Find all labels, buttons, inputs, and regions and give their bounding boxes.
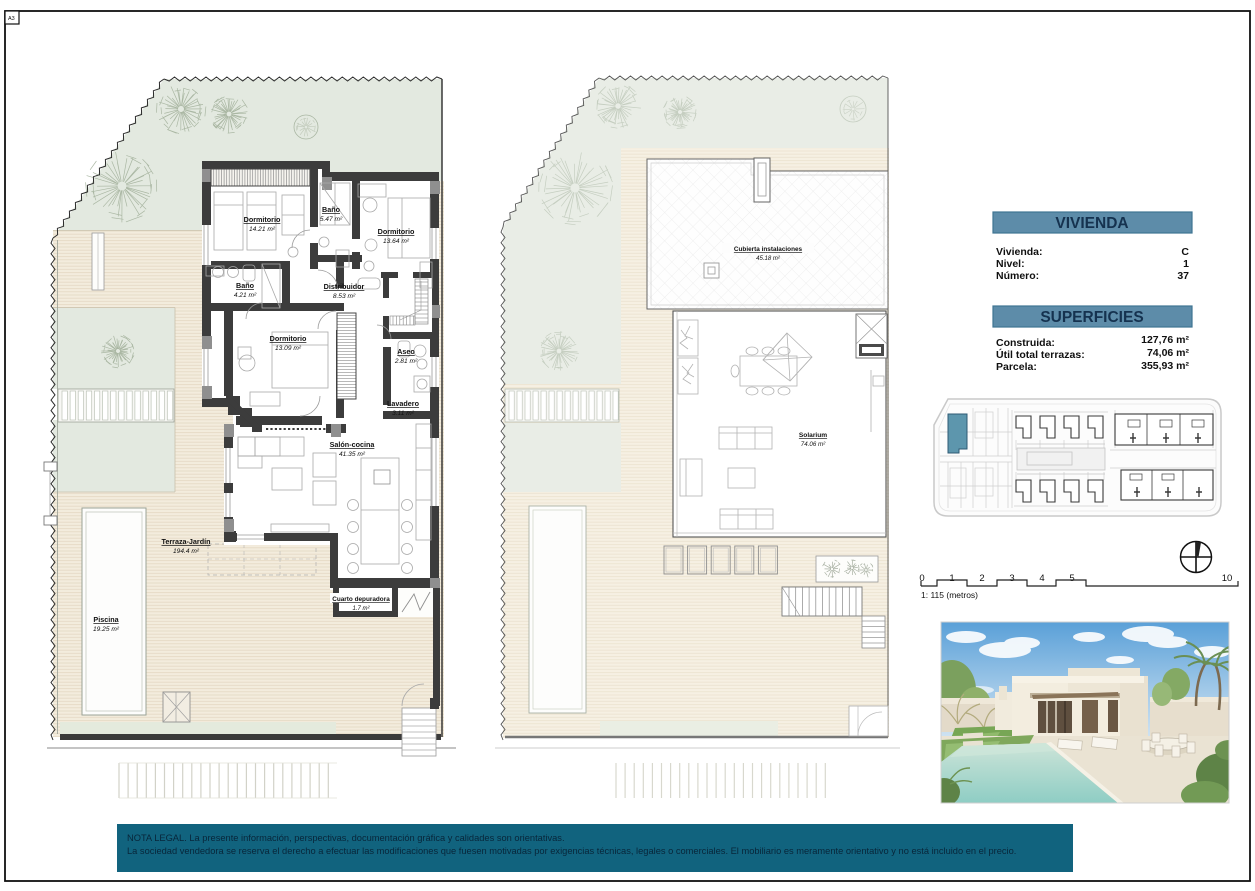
svg-text:14.21 m²: 14.21 m² [249,226,276,233]
svg-text:3: 3 [1009,573,1014,584]
svg-text:8.53 m²: 8.53 m² [333,293,356,300]
svg-text:74.06 m²: 74.06 m² [801,441,826,448]
svg-text:1: 1 [949,573,954,584]
svg-text:VIVIENDA: VIVIENDA [1055,215,1128,232]
svg-text:Dormitorio: Dormitorio [378,227,415,236]
svg-text:Solarium: Solarium [799,432,827,439]
svg-text:0: 0 [919,573,924,584]
svg-text:Aseo: Aseo [397,347,415,356]
svg-text:Parcela:: Parcela: [996,361,1037,373]
svg-text:C: C [1181,246,1189,258]
svg-text:Dormitorio: Dormitorio [270,334,307,343]
svg-text:SUPERFICIES: SUPERFICIES [1040,309,1143,326]
svg-text:355,93 m²: 355,93 m² [1141,360,1189,372]
svg-text:41.35 m²: 41.35 m² [339,451,366,458]
svg-text:La sociedad vendedora se reser: La sociedad vendedora se reserva el dere… [127,846,1016,856]
svg-text:Distribuidor: Distribuidor [324,282,365,291]
svg-text:127,76 m²: 127,76 m² [1141,334,1189,346]
svg-text:10: 10 [1222,573,1233,584]
svg-text:1: 1 [1183,258,1189,270]
svg-text:74,06 m²: 74,06 m² [1147,347,1190,359]
svg-text:4: 4 [1039,573,1044,584]
svg-text:Cuarto depuradora: Cuarto depuradora [332,596,390,603]
svg-text:13.64 m²: 13.64 m² [383,238,410,245]
svg-text:Dormitorio: Dormitorio [244,215,281,224]
svg-text:2.81 m²: 2.81 m² [394,358,418,365]
svg-text:Lavadero: Lavadero [387,399,420,408]
svg-text:Número:: Número: [996,270,1039,282]
svg-text:Salón-cocina: Salón-cocina [330,440,376,449]
svg-text:Nivel:: Nivel: [996,258,1025,270]
svg-text:Baño: Baño [322,205,341,214]
svg-text:2: 2 [979,573,984,584]
svg-text:NOTA LEGAL. La presente inform: NOTA LEGAL. La presente información, per… [127,833,565,843]
svg-text:3.11 m²: 3.11 m² [392,410,415,417]
svg-text:5.47 m²: 5.47 m² [320,216,343,223]
svg-text:19.25 m²: 19.25 m² [93,626,120,633]
svg-text:Piscina: Piscina [93,615,119,624]
svg-text:Cubierta instalaciones: Cubierta instalaciones [734,246,803,253]
svg-text:Baño: Baño [236,281,255,290]
svg-text:A3: A3 [8,16,15,22]
svg-text:45.18 m²: 45.18 m² [756,256,781,262]
svg-text:5: 5 [1069,573,1074,584]
svg-text:Útil total terrazas:: Útil total terrazas: [996,348,1085,361]
svg-text:1.7 m²: 1.7 m² [352,606,370,612]
svg-text:1: 115 (metros): 1: 115 (metros) [921,590,978,600]
svg-text:Vivienda:: Vivienda: [996,246,1043,258]
svg-text:4.21 m²: 4.21 m² [234,292,257,299]
svg-text:194.4 m²: 194.4 m² [173,548,200,555]
svg-text:37: 37 [1177,270,1189,282]
svg-text:Construida:: Construida: [996,337,1055,349]
svg-text:13.09 m²: 13.09 m² [275,345,302,352]
svg-text:Terraza-Jardín: Terraza-Jardín [162,537,211,546]
